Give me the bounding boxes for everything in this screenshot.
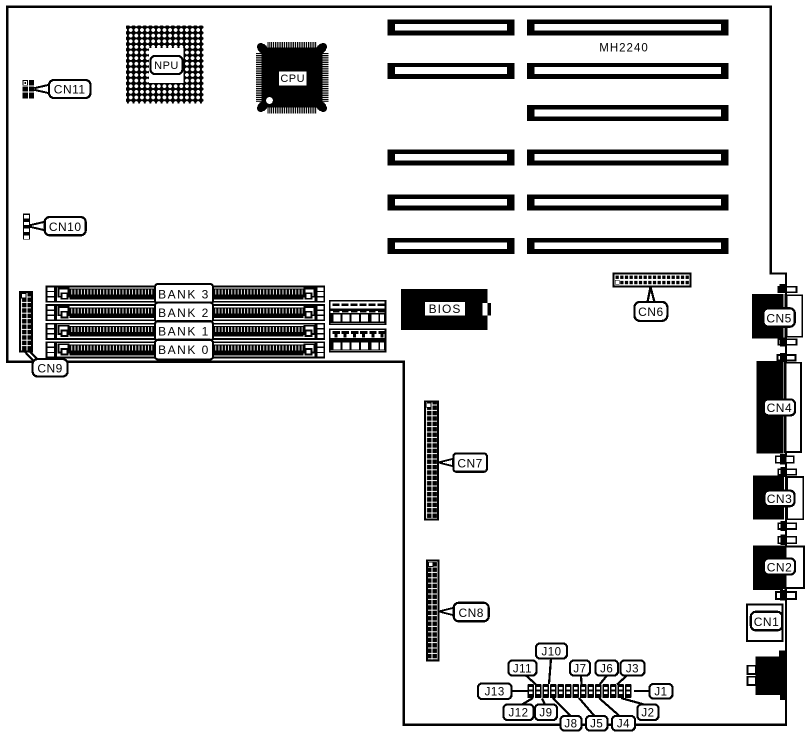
svg-text:J12: J12 — [508, 708, 528, 720]
svg-text:CN8: CN8 — [458, 606, 484, 620]
svg-text:J4: J4 — [617, 719, 630, 731]
svg-text:J5: J5 — [590, 719, 603, 731]
svg-text:CN1: CN1 — [754, 615, 780, 629]
svg-text:J11: J11 — [513, 664, 532, 676]
svg-text:CN7: CN7 — [457, 456, 483, 470]
svg-text:CN5: CN5 — [766, 311, 792, 325]
svg-text:CN10: CN10 — [49, 220, 82, 234]
svg-text:J7: J7 — [573, 664, 586, 676]
svg-text:BANK 3: BANK 3 — [158, 287, 210, 301]
svg-text:NPU: NPU — [154, 60, 179, 72]
svg-text:CN4: CN4 — [767, 401, 793, 415]
svg-text:CPU: CPU — [280, 73, 305, 85]
svg-text:BIOS: BIOS — [429, 302, 462, 316]
svg-text:J13: J13 — [485, 687, 505, 699]
svg-text:CN2: CN2 — [767, 560, 793, 574]
svg-text:J1: J1 — [654, 687, 667, 699]
svg-text:CN3: CN3 — [767, 492, 793, 506]
svg-text:J6: J6 — [600, 664, 613, 676]
svg-text:CN9: CN9 — [37, 361, 63, 375]
svg-text:BANK 2: BANK 2 — [158, 306, 210, 320]
svg-text:J10: J10 — [541, 647, 561, 659]
svg-text:J2: J2 — [641, 708, 654, 720]
svg-text:CN11: CN11 — [54, 83, 86, 97]
svg-text:J9: J9 — [539, 708, 552, 720]
svg-text:BANK 1: BANK 1 — [158, 325, 210, 339]
svg-text:J3: J3 — [626, 664, 639, 676]
svg-text:J8: J8 — [564, 719, 577, 731]
svg-text:CN6: CN6 — [638, 305, 664, 319]
svg-text:BANK 0: BANK 0 — [158, 343, 210, 357]
svg-text:MH2240: MH2240 — [599, 42, 648, 54]
